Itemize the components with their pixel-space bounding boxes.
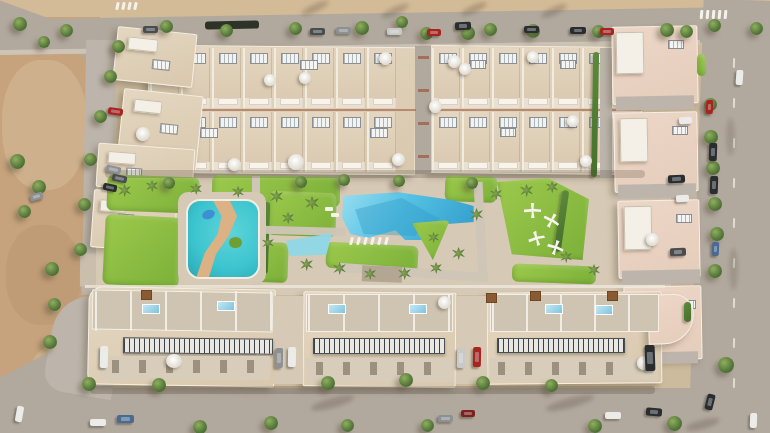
tree — [84, 153, 97, 166]
parked-car — [706, 100, 713, 114]
tree — [112, 40, 125, 53]
townhouse-unit — [305, 112, 334, 172]
parasol — [379, 52, 392, 65]
tree — [393, 175, 405, 187]
parked-car — [524, 26, 539, 33]
tree — [667, 416, 682, 431]
driveway — [622, 269, 700, 284]
terrace-wall — [95, 291, 97, 331]
facade — [490, 358, 658, 380]
east-alley — [600, 48, 612, 178]
doorway — [343, 362, 350, 375]
parked-car — [670, 248, 686, 257]
tree — [680, 25, 693, 38]
parked-car — [570, 27, 586, 34]
tree — [45, 262, 59, 276]
tree — [295, 176, 307, 188]
rooftop-plunge-pool — [328, 304, 346, 314]
tree — [321, 376, 335, 390]
terrace-wall — [235, 291, 237, 331]
townhouse-unit — [552, 48, 580, 108]
townhouse-unit — [336, 48, 365, 108]
rooftop-pergola — [607, 291, 618, 301]
tree — [545, 379, 558, 392]
townhouse-unit — [462, 48, 490, 108]
parasol — [392, 153, 405, 166]
roof-structure — [620, 118, 649, 162]
townhouse-unit — [462, 112, 490, 172]
rooftop-pergola — [486, 293, 497, 303]
tree — [338, 174, 350, 186]
terrace-wall — [378, 294, 380, 332]
tree — [220, 24, 233, 37]
driving-car — [735, 70, 743, 85]
rooftop-plunge-pool — [595, 305, 613, 315]
tree — [163, 177, 175, 189]
parasol — [264, 74, 276, 86]
tree — [710, 227, 724, 241]
parasol — [438, 296, 451, 309]
parked-car — [676, 195, 689, 203]
parked-car — [455, 22, 471, 31]
tree — [18, 205, 31, 218]
row-shadow — [90, 386, 655, 394]
doorway — [525, 362, 532, 375]
road-shadow — [726, 118, 735, 156]
solar-panel — [370, 128, 388, 138]
solar-panel — [160, 123, 179, 135]
doorway — [498, 362, 505, 375]
parked-car — [473, 347, 481, 367]
rooftop-pergola — [141, 290, 152, 300]
parked-car — [679, 117, 692, 125]
parked-car — [100, 346, 108, 368]
rooftop-plunge-pool — [409, 304, 427, 314]
parked-car — [712, 242, 719, 256]
tree — [750, 22, 763, 35]
tree — [718, 357, 734, 373]
parked-car — [600, 28, 614, 35]
parked-car — [457, 348, 465, 368]
tree — [60, 24, 73, 37]
solar-panel — [470, 60, 486, 69]
tree — [341, 419, 354, 432]
doorway — [606, 362, 613, 375]
parked-van — [645, 345, 656, 371]
tree — [466, 177, 478, 189]
parked-car — [275, 348, 283, 368]
tree — [10, 154, 25, 169]
tree — [94, 110, 107, 123]
parasol — [228, 158, 241, 171]
townhouse-unit — [522, 112, 550, 172]
parked-van — [710, 176, 719, 194]
doorway — [247, 360, 254, 373]
solar-panel — [676, 214, 692, 223]
tree — [355, 21, 369, 35]
rooftop-plunge-pool — [217, 301, 235, 311]
driveway — [273, 296, 303, 384]
parasol — [288, 154, 304, 170]
tree — [476, 376, 490, 390]
parasol — [527, 51, 539, 63]
terrace-wall — [165, 291, 167, 331]
parasol — [459, 63, 471, 75]
tree — [193, 420, 207, 433]
solar-panel — [200, 128, 218, 138]
parasol — [567, 115, 579, 127]
driveway — [456, 296, 487, 384]
lane-marking — [733, 218, 735, 228]
solar-array — [497, 338, 625, 353]
solar-panel — [672, 126, 688, 135]
parked-car — [288, 347, 296, 367]
lane-marking — [733, 58, 735, 68]
parked-car — [427, 29, 441, 36]
tree — [396, 16, 408, 28]
tree — [289, 22, 302, 35]
pool-float — [325, 207, 333, 211]
lawn — [102, 214, 182, 288]
solar-panel — [152, 59, 171, 71]
dirt-patch — [2, 60, 87, 190]
parasol — [136, 127, 150, 141]
tree — [421, 419, 434, 432]
tree — [660, 23, 674, 37]
roof-structure — [133, 99, 162, 115]
tree — [104, 70, 117, 83]
parked-car — [90, 419, 106, 426]
doorway — [579, 362, 586, 375]
roof-structure — [108, 151, 137, 165]
doorway — [112, 360, 119, 373]
parasol — [429, 100, 442, 113]
tree — [160, 20, 173, 33]
terrace-wall — [628, 294, 630, 332]
tree — [43, 335, 57, 349]
tree — [152, 378, 166, 392]
tree — [82, 377, 96, 391]
doorway — [370, 362, 377, 375]
doorway — [139, 360, 146, 373]
roof-terraces — [92, 289, 274, 332]
parked-car — [117, 415, 134, 423]
tree — [13, 17, 27, 31]
lawn — [512, 264, 597, 285]
tree — [78, 198, 91, 211]
facade — [100, 356, 270, 380]
lane-marking — [733, 98, 735, 108]
tree — [264, 416, 278, 430]
tree — [708, 197, 722, 211]
lane-marking — [733, 298, 735, 308]
parked-van — [709, 143, 718, 161]
driveway — [616, 95, 694, 110]
aerial-residential-complex-render — [0, 0, 770, 433]
tree — [708, 19, 721, 32]
townhouse-unit — [336, 112, 365, 172]
doorway — [220, 360, 227, 373]
terrace-wall — [130, 291, 132, 331]
car-canopy — [166, 354, 182, 368]
tree — [704, 130, 718, 144]
lane-marking — [733, 338, 735, 348]
tree — [588, 419, 602, 433]
lane-marking — [733, 378, 735, 388]
solar-panel — [300, 60, 318, 70]
solar-array — [313, 338, 445, 354]
villa-block-west — [112, 26, 197, 88]
doorway — [424, 362, 431, 375]
townhouse-unit — [492, 48, 520, 108]
alley-mark — [418, 155, 429, 158]
parked-car — [143, 26, 158, 33]
parasol — [580, 155, 592, 167]
parked-car — [646, 407, 663, 416]
road-shadow — [729, 248, 738, 290]
doorway — [316, 362, 323, 375]
rooftop-pergola — [530, 291, 541, 301]
tree — [708, 264, 722, 278]
solar-panel — [668, 40, 684, 49]
parked-car — [461, 410, 475, 417]
terrace-wall — [270, 291, 272, 331]
parked-car — [336, 27, 351, 34]
rooftop-plunge-pool — [545, 304, 563, 314]
rooftop-plunge-pool — [142, 304, 160, 314]
parked-car — [605, 412, 621, 419]
alley-mark — [418, 89, 429, 92]
parasol — [646, 233, 659, 246]
townhouse-unit — [212, 48, 241, 108]
terrace-wall — [200, 291, 202, 331]
tree — [484, 23, 497, 36]
alley-mark — [418, 56, 429, 59]
splash-island — [229, 237, 242, 248]
townhouse-unit — [492, 112, 520, 172]
hedge — [684, 302, 691, 322]
townhouse-unit — [367, 112, 396, 172]
parasol — [299, 72, 311, 84]
terrace-wall — [308, 294, 310, 332]
solar-panel — [560, 60, 576, 69]
townhouse-unit — [243, 112, 272, 172]
tree — [48, 298, 61, 311]
cluster-shadow — [105, 170, 645, 178]
solar-panel — [500, 128, 516, 137]
parked-car — [668, 175, 685, 184]
tree — [399, 373, 413, 387]
tree — [706, 161, 720, 175]
parked-car — [310, 28, 325, 35]
townhouse-unit — [432, 112, 460, 172]
driving-car — [750, 413, 758, 428]
lane-marking — [733, 178, 735, 188]
tree — [74, 243, 87, 256]
doorway — [193, 360, 200, 373]
roof-terraces — [490, 294, 659, 332]
tree — [38, 36, 50, 48]
solar-array — [123, 337, 273, 354]
pool-float — [331, 213, 339, 217]
roof-structure — [616, 32, 645, 74]
terrace-wall — [526, 294, 528, 332]
parked-car — [438, 415, 453, 422]
road-median — [697, 54, 706, 76]
alley-mark — [418, 122, 429, 125]
doorway — [552, 362, 559, 375]
parked-car — [387, 28, 402, 35]
